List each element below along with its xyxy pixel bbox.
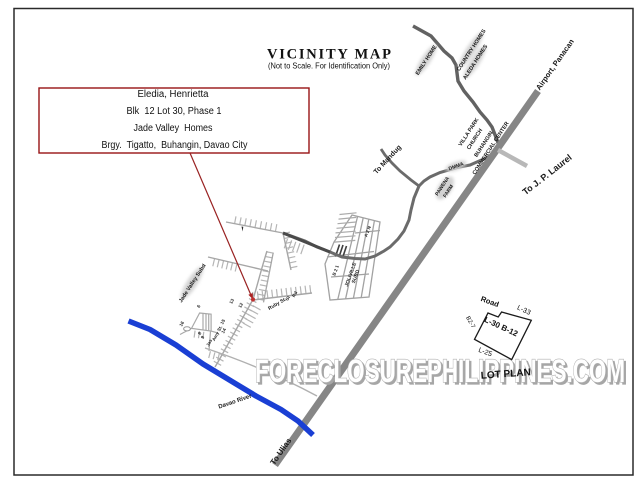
svg-text:Brgy. Tigatto, Buhangin, Dav: Brgy. Tigatto, Buhangin, Davao City — [102, 140, 248, 151]
svg-text:Eledia, Henrietta: Eledia, Henrietta — [138, 89, 209, 100]
svg-text:Blk 12 Lot 30, Phase 1: Blk 12 Lot 30, Phase 1 — [127, 106, 222, 117]
svg-text:Jade Valley Homes: Jade Valley Homes — [134, 123, 213, 134]
svg-text:FORECLOSUREPHILIPPINES.COM: FORECLOSUREPHILIPPINES.COM — [255, 353, 625, 389]
svg-text:(Not to Scale. For Identificat: (Not to Scale. For Identification Only) — [268, 62, 390, 71]
